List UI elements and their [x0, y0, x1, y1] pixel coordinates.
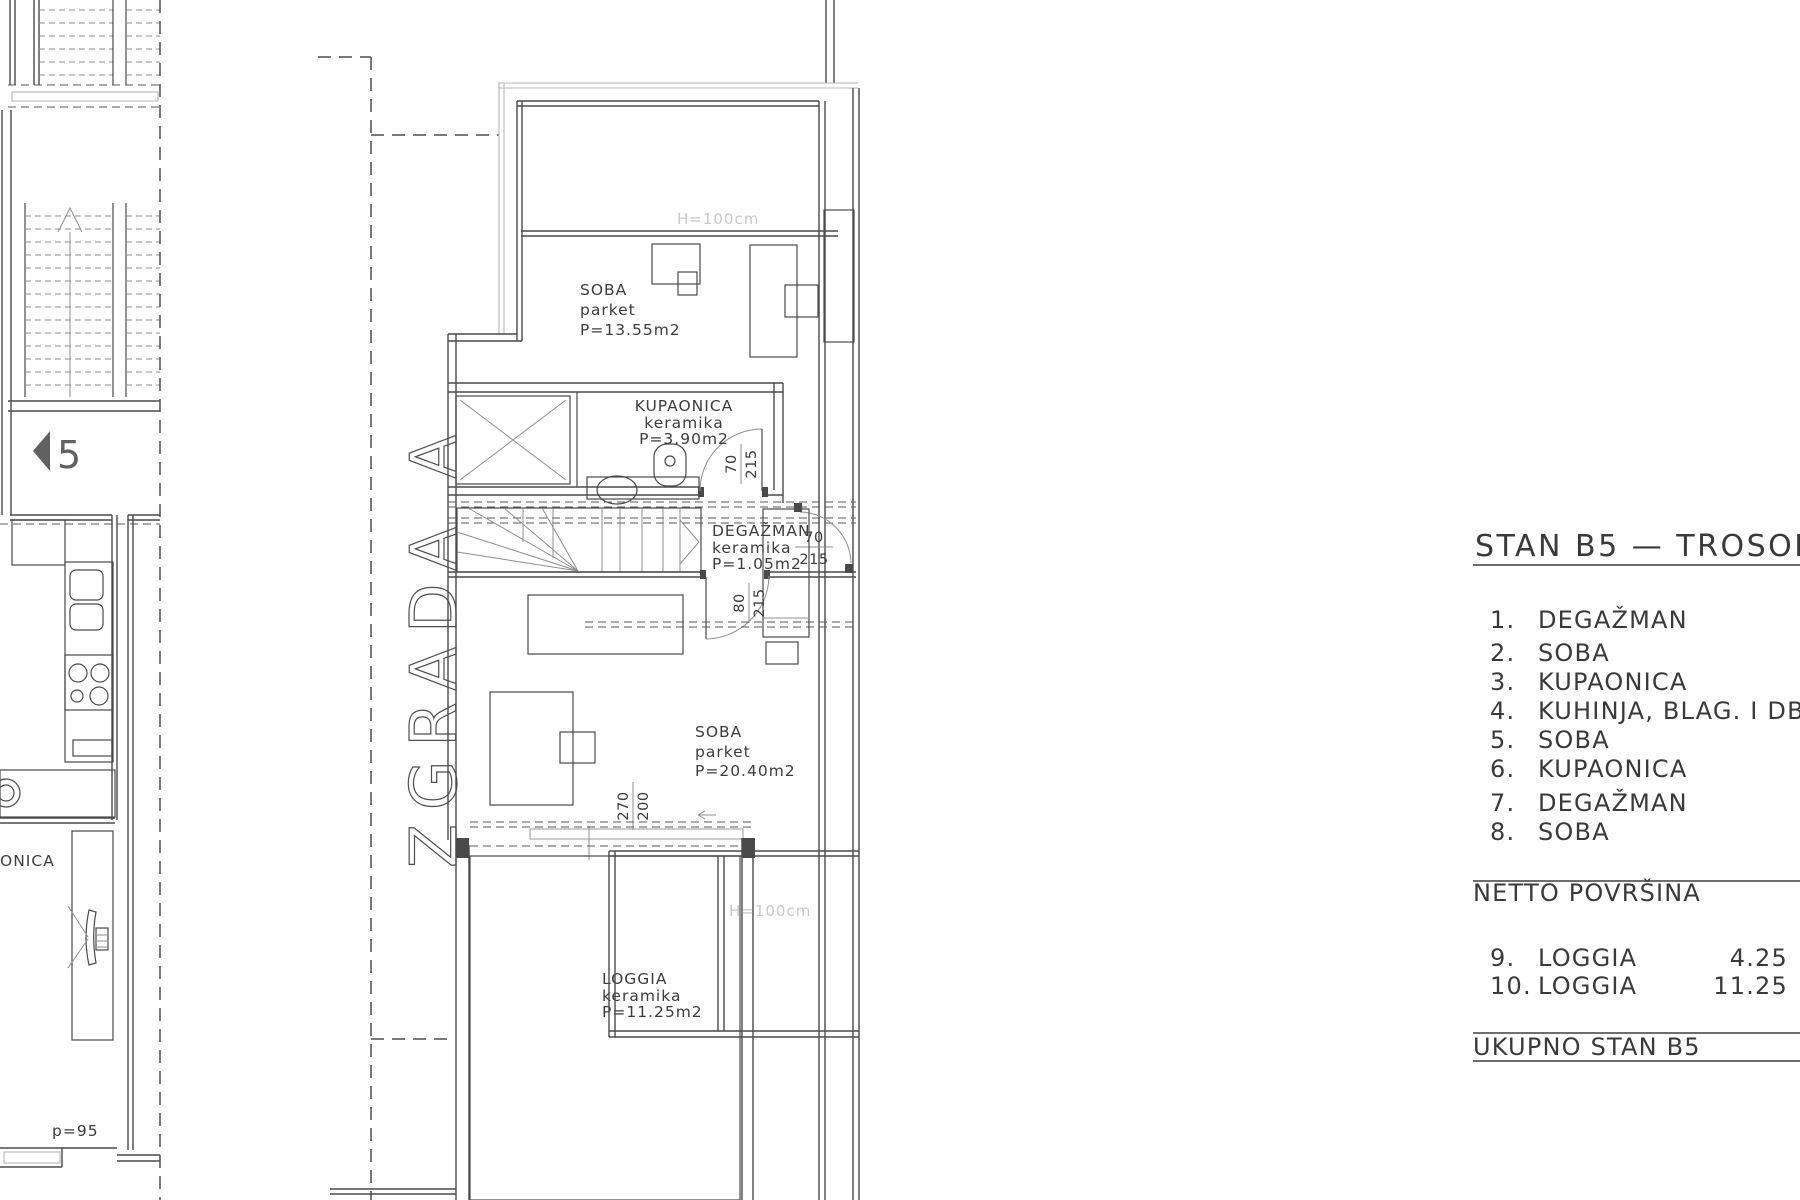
- parapet-height-label-top: H=100cm: [677, 210, 759, 228]
- room-label: KUPAONICA: [635, 397, 734, 415]
- floor-plan-svg: 5 ONICA: [0, 0, 1800, 1200]
- opening-dim-label: 270 200: [616, 782, 652, 830]
- room-kupaonica: 70 215 KUPAONICA keramika P=3.90m2: [448, 383, 783, 504]
- svg-text:4.: 4.: [1490, 697, 1515, 725]
- chair: [785, 285, 818, 317]
- room-floor-label: parket: [695, 743, 751, 761]
- total-label: UKUPNO STAN B5: [1473, 1033, 1701, 1061]
- stair-direction-arrow: [58, 208, 82, 232]
- legend-item: 1. DEGAŽMAN: [1490, 605, 1688, 634]
- netto-item: 10. LOGGIA 11.25: [1490, 972, 1788, 1000]
- room-area-label: P=11.25m2: [602, 1003, 703, 1021]
- svg-text:200: 200: [636, 791, 652, 820]
- kitchen-sink-icon: [70, 570, 103, 600]
- window-bottom-left: [0, 1148, 160, 1167]
- svg-text:DEGAŽMAN: DEGAŽMAN: [1538, 605, 1688, 634]
- legend-item: 3. KUPAONICA: [1490, 668, 1688, 696]
- arrow-left-icon: [698, 811, 716, 819]
- svg-text:2.: 2.: [1490, 639, 1515, 667]
- room-area-label: P=20.40m2: [695, 762, 796, 780]
- svg-text:215: 215: [752, 588, 768, 617]
- parapet-left-label: p=95: [52, 1122, 99, 1140]
- chair: [560, 732, 595, 763]
- desk: [750, 245, 797, 357]
- stove-icon: [65, 655, 113, 710]
- round-sink-icon: [0, 779, 20, 807]
- room-label: DEGAŽMAN: [712, 521, 811, 540]
- netto-heading: NETTO POVRŠINA: [1473, 877, 1701, 907]
- stair-mark: [680, 520, 699, 564]
- svg-text:KUPAONICA: KUPAONICA: [1538, 668, 1688, 696]
- room-label: LOGGIA: [602, 970, 667, 988]
- legend-item: 8. SOBA: [1490, 818, 1610, 846]
- kitchen: [0, 520, 115, 823]
- nightstand: [766, 642, 798, 664]
- kitchen-sink-icon: [70, 604, 103, 630]
- legend-item: 6. KUPAONICA: [1490, 755, 1688, 783]
- round-sink-icon: [0, 785, 14, 801]
- svg-text:SOBA: SOBA: [1538, 639, 1610, 667]
- svg-text:270: 270: [616, 791, 632, 820]
- neighbor-room-label: ONICA: [0, 852, 55, 870]
- total-row: UKUPNO STAN B5: [1473, 1033, 1800, 1061]
- staircase-upper-flight: [39, 0, 160, 85]
- room-loggia: LOGGIA keramika P=11.25m2: [330, 822, 755, 1200]
- parapet-height-label-bottom: H=100cm: [729, 902, 811, 920]
- svg-text:10.: 10.: [1490, 972, 1532, 1000]
- room-soba-top: H=100cm SOBA parket P=13.55m2: [521, 210, 854, 357]
- svg-text:KUPAONICA: KUPAONICA: [1538, 755, 1688, 783]
- room-label: SOBA: [695, 723, 742, 741]
- adjacent-unit-left: 5 ONICA: [0, 0, 160, 1167]
- svg-text:3.: 3.: [1490, 668, 1515, 696]
- svg-text:SOBA: SOBA: [1538, 818, 1610, 846]
- svg-text:215: 215: [799, 552, 828, 568]
- oven-icon: [73, 740, 112, 756]
- window-band: [12, 92, 158, 101]
- svg-text:7.: 7.: [1490, 789, 1515, 817]
- zgrada-a-label: ZGRADA A: [398, 421, 472, 868]
- shower-icon: [456, 396, 570, 484]
- svg-text:1.: 1.: [1490, 606, 1515, 634]
- room-label: SOBA: [580, 281, 627, 299]
- svg-text:DEGAŽMAN: DEGAŽMAN: [1538, 788, 1688, 817]
- section-marker-icon: [33, 431, 50, 471]
- closet: [824, 210, 854, 342]
- room-floor-label: parket: [580, 301, 636, 319]
- sliding-door: [530, 829, 743, 839]
- loggia-tiles: [470, 856, 740, 1200]
- legend-item: 2. SOBA: [1490, 639, 1610, 667]
- legend-item: 5. SOBA: [1490, 726, 1610, 754]
- table: [528, 595, 683, 654]
- svg-text:KUHINJA, BLAG. I DB: KUHINJA, BLAG. I DB: [1538, 697, 1800, 725]
- vanity-counter: [587, 477, 699, 499]
- counter-lower: [0, 770, 115, 817]
- svg-text:6.: 6.: [1490, 755, 1515, 783]
- legend-item: 7. DEGAŽMAN: [1490, 788, 1688, 817]
- netto-value: 11.25: [1713, 972, 1788, 1000]
- svg-text:LOGGIA: LOGGIA: [1538, 944, 1637, 972]
- toilet-icon: [654, 444, 686, 486]
- section-marker-number: 5: [57, 433, 81, 477]
- legend-panel: STAN B5 — TROSOB 1. DEGAŽMAN 2. SOBA 3. …: [1473, 529, 1800, 1061]
- netto-item: 9. LOGGIA 4.25: [1490, 944, 1788, 972]
- legend-item: 4. KUHINJA, BLAG. I DB: [1490, 697, 1800, 725]
- svg-text:70: 70: [724, 454, 740, 473]
- svg-text:80: 80: [732, 593, 748, 612]
- staircase-mid-flight: [25, 203, 160, 397]
- door-dim-label: 70 215: [724, 444, 760, 484]
- svg-text:SOBA: SOBA: [1538, 726, 1610, 754]
- tv-symbol: [68, 906, 108, 968]
- room-area-label: P=13.55m2: [580, 321, 681, 339]
- netto-value: 4.25: [1730, 944, 1788, 972]
- svg-text:9.: 9.: [1490, 944, 1515, 972]
- room-area-label: P=1.05m2: [712, 555, 802, 573]
- desk: [652, 244, 700, 284]
- kitchen-counter: [12, 520, 65, 565]
- washbasin-icon: [597, 476, 637, 504]
- kitchen-run: [65, 562, 113, 762]
- svg-text:LOGGIA: LOGGIA: [1538, 972, 1637, 1000]
- svg-text:8.: 8.: [1490, 818, 1515, 846]
- svg-text:70: 70: [804, 530, 823, 546]
- svg-text:215: 215: [744, 449, 760, 478]
- room-area-label: P=3.90m2: [639, 430, 729, 448]
- svg-text:5.: 5.: [1490, 726, 1515, 754]
- legend-title: STAN B5 — TROSOB: [1475, 529, 1800, 564]
- floor-plan-sheet: 5 ONICA: [0, 0, 1800, 1200]
